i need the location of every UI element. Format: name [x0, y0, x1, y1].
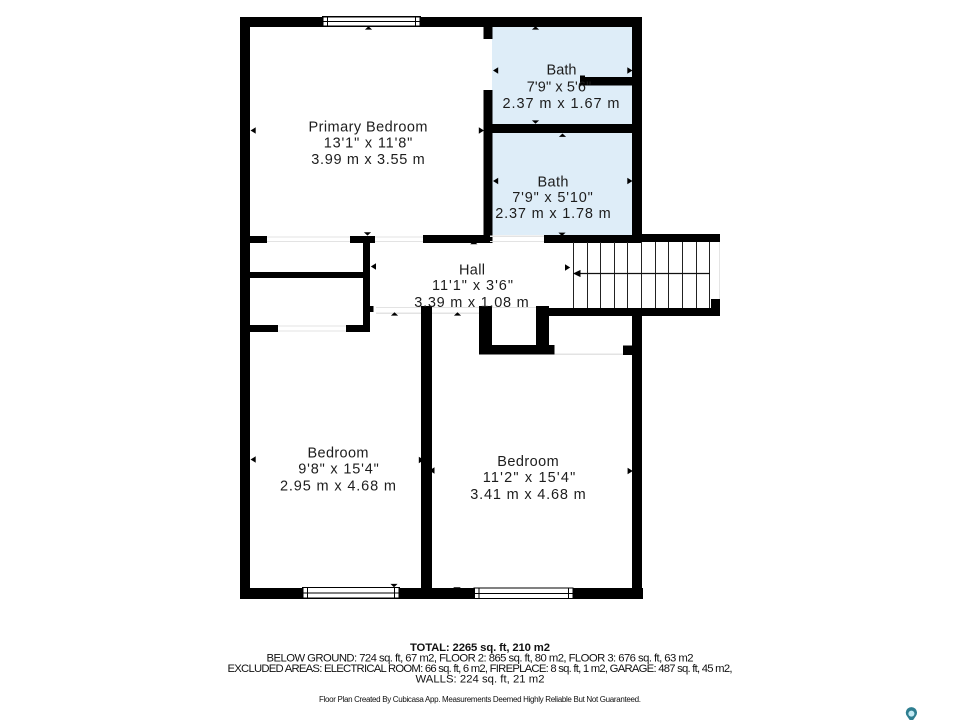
- svg-text:2.95 m x 4.68 m: 2.95 m x 4.68 m: [280, 478, 396, 494]
- svg-text:Bedroom: Bedroom: [497, 454, 559, 470]
- svg-text:Hall: Hall: [459, 263, 485, 279]
- svg-text:11'1" x 3'6": 11'1" x 3'6": [432, 278, 513, 294]
- svg-text:3.99 m x 3.55 m: 3.99 m x 3.55 m: [311, 152, 425, 168]
- svg-text:Bedroom: Bedroom: [308, 446, 369, 462]
- svg-text:Bath: Bath: [538, 174, 569, 190]
- svg-text:7'9" x 5'6": 7'9" x 5'6": [527, 79, 592, 95]
- svg-text:Primary Bedroom: Primary Bedroom: [309, 120, 428, 136]
- svg-text:2.37 m x 1.67 m: 2.37 m x 1.67 m: [503, 96, 620, 112]
- svg-text:3.39 m x 1.08 m: 3.39 m x 1.08 m: [414, 295, 529, 311]
- svg-text:3.41 m x 4.68 m: 3.41 m x 4.68 m: [470, 487, 586, 503]
- svg-text:Floor Plan Created By Cubicasa: Floor Plan Created By Cubicasa App. Meas…: [319, 695, 641, 704]
- svg-text:11'2" x 15'4": 11'2" x 15'4": [483, 470, 576, 486]
- svg-text:7'9" x 5'10": 7'9" x 5'10": [512, 190, 593, 206]
- svg-text:13'1" x 11'8": 13'1" x 11'8": [324, 136, 413, 152]
- svg-text:WALLS: 224 sq. ft, 21 m2: WALLS: 224 sq. ft, 21 m2: [416, 673, 545, 685]
- svg-text:Bath: Bath: [547, 63, 577, 79]
- svg-text:9'8" x 15'4": 9'8" x 15'4": [298, 462, 379, 478]
- svg-text:2.37 m x 1.78 m: 2.37 m x 1.78 m: [495, 206, 611, 222]
